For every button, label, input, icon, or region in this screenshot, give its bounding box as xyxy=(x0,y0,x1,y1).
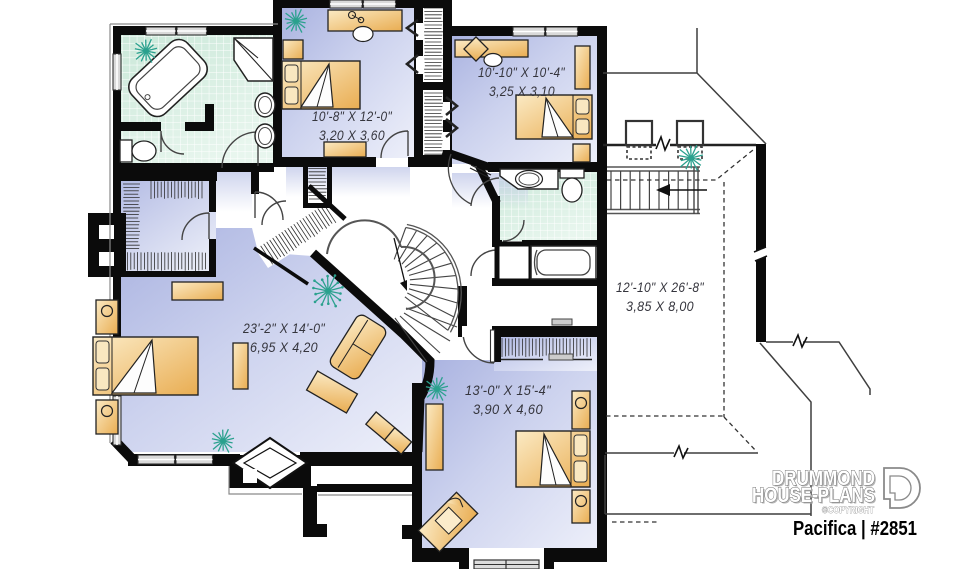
svg-text:3,20 X 3,60: 3,20 X 3,60 xyxy=(319,128,385,143)
svg-text:10'-10" X 10'-4": 10'-10" X 10'-4" xyxy=(478,65,566,80)
svg-text:3,90 X 4,60: 3,90 X 4,60 xyxy=(473,402,543,417)
svg-text:Pacifica | #2851: Pacifica | #2851 xyxy=(793,518,917,540)
svg-text:13'-0" X 15'-4": 13'-0" X 15'-4" xyxy=(465,383,552,398)
svg-text:23'-2" X 14'-0": 23'-2" X 14'-0" xyxy=(242,321,326,336)
svg-text:©COPYRIGHT: ©COPYRIGHT xyxy=(822,505,874,515)
svg-text:12'-10" X 26'-8": 12'-10" X 26'-8" xyxy=(616,280,705,295)
svg-text:6,95 X 4,20: 6,95 X 4,20 xyxy=(250,340,318,355)
svg-text:3,85 X 8,00: 3,85 X 8,00 xyxy=(626,299,694,314)
svg-text:3,25 X 3,10: 3,25 X 3,10 xyxy=(489,84,555,99)
svg-text:10'-8" X 12'-0": 10'-8" X 12'-0" xyxy=(312,109,393,124)
svg-text:HOUSE-PLANS: HOUSE-PLANS xyxy=(752,484,875,507)
